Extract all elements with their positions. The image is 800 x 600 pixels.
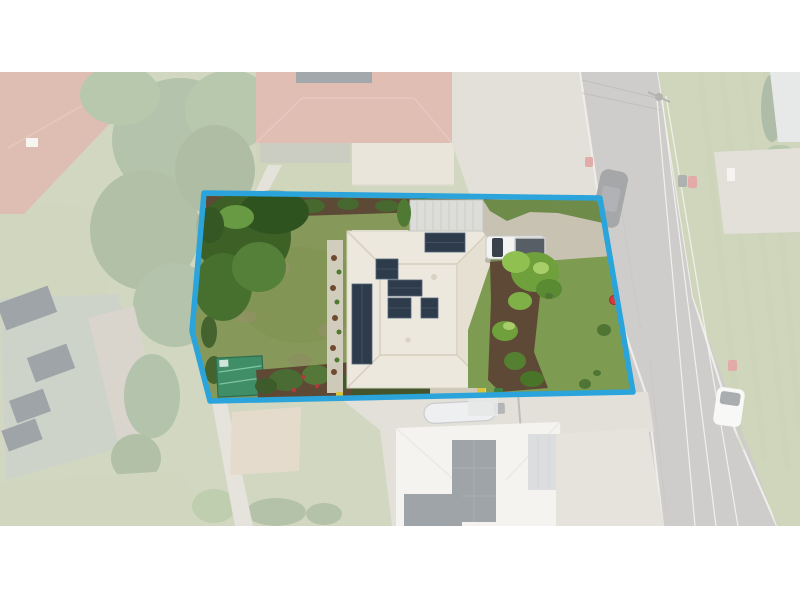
backyard-tree-canopy [232,242,286,292]
red-flower [315,384,319,388]
lawn-shrub [545,293,553,299]
lawn-patch [288,353,312,367]
pot-plant [331,255,337,261]
garage-side-garden [397,199,411,227]
side-garden-bed [201,316,217,348]
garden-shrub [255,378,277,394]
garden-shrub [375,200,399,212]
aerial-photo-svg [0,72,800,526]
pot-plant [330,345,336,351]
garden-shrub [302,365,330,385]
palm-canopy [520,371,544,387]
pot-plant [332,315,338,321]
palm-highlight [533,262,549,274]
pot-plant-green [335,300,340,305]
pot-plant-green [335,358,340,363]
palm-canopy [502,251,530,273]
ute-windshield [492,238,503,257]
lawn-shrub [579,379,591,389]
red-flower [301,375,305,379]
garage-roof [410,200,483,231]
garden-shed-skylight [219,360,228,367]
palm-canopy [508,292,532,310]
pot-plant [330,285,336,291]
aerial-photo [0,72,800,526]
palm-canopy [504,352,526,370]
pot-plant [331,369,337,375]
palm-highlight [503,322,515,330]
pot-plant-green [337,270,342,275]
pot-plant-green [337,330,342,335]
letterbox-bottom [0,526,800,600]
lawn-shrub [593,370,601,376]
roof-vent [431,274,437,280]
garden-shrub [337,198,359,210]
roof-vent [406,338,411,343]
letterbox-top [0,0,800,72]
lawn-shrub [597,324,611,336]
red-flower [292,388,296,392]
